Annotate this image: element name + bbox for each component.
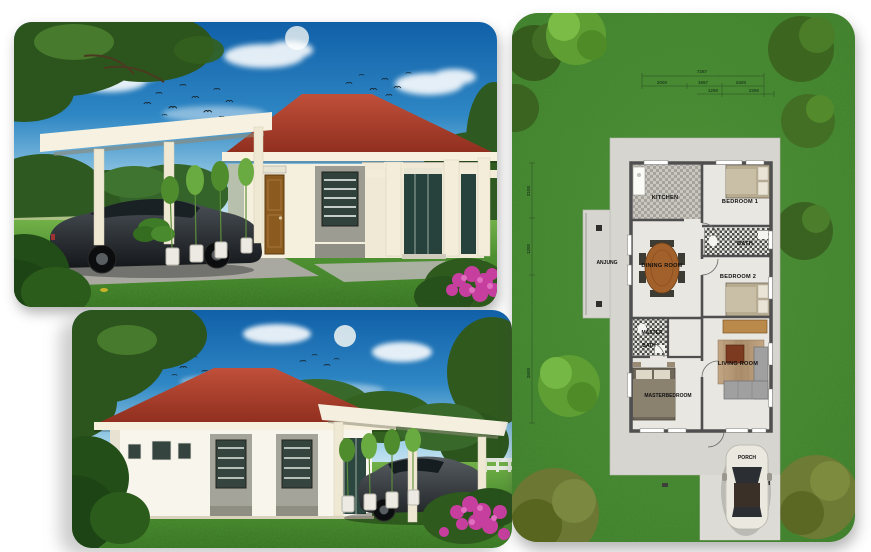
bath-sink xyxy=(655,345,665,353)
bed-bedroom2 xyxy=(726,283,770,316)
label-bedroom2: BEDROOM 2 xyxy=(720,274,756,280)
porch-step xyxy=(402,254,446,259)
small-window xyxy=(152,441,171,460)
anjung-post xyxy=(596,225,602,231)
exterior-render-rear-scene xyxy=(72,310,512,548)
side-mirror xyxy=(722,473,727,481)
label-anjung: ANJUNG xyxy=(596,260,617,266)
dim-segment: 2350 xyxy=(749,88,760,93)
bath-sink xyxy=(758,231,768,239)
label-kitchen: KITCHEN xyxy=(652,195,679,201)
label-porch: PORCH xyxy=(738,455,756,461)
wheel-hub xyxy=(96,253,108,265)
label-living: LIVING ROOM xyxy=(718,361,758,367)
label-bedroom1: BEDROOM 1 xyxy=(722,199,758,205)
tail-light xyxy=(51,234,55,240)
dim-segment: 2000 xyxy=(657,80,668,85)
carport-post xyxy=(94,149,104,245)
sideboard xyxy=(723,320,767,333)
side-mirror xyxy=(767,473,772,481)
door-transom-window xyxy=(263,166,286,173)
sink-basin xyxy=(637,173,641,177)
cabin xyxy=(734,483,760,507)
dim-left: 2100 xyxy=(526,185,531,196)
exterior-render-rear-image xyxy=(72,310,512,548)
sofa-seat xyxy=(724,381,768,399)
master-bed xyxy=(633,362,675,420)
floor-plan-scene: 7267 2000 1667 2400 1250 2350 2100 1200 … xyxy=(512,13,855,542)
porch-column xyxy=(444,160,459,256)
gray-base-band xyxy=(315,244,365,258)
small-window xyxy=(128,444,141,459)
porch-transom xyxy=(404,168,442,175)
gate-post xyxy=(662,483,668,487)
small-window xyxy=(178,443,191,459)
dim-total: 7267 xyxy=(697,69,708,74)
door-knob xyxy=(279,216,282,219)
label-dining: DINING ROOM xyxy=(641,263,682,269)
dim-segment: 1250 xyxy=(708,88,719,93)
dim-segment: 2400 xyxy=(736,80,747,85)
anjung-post xyxy=(596,301,602,307)
toilet xyxy=(709,236,718,247)
rear-window xyxy=(732,507,762,517)
label-master-bedroom: MASTERBEDROOM xyxy=(644,393,691,399)
carport-post xyxy=(254,127,263,243)
dim-segment: 1667 xyxy=(698,80,709,85)
dim-left: 2600 xyxy=(526,367,531,378)
moon xyxy=(334,325,356,347)
presentation-board: 7267 2000 1667 2400 1250 2350 2100 1200 … xyxy=(0,0,871,552)
kitchen-sink-counter xyxy=(633,167,645,195)
louver-window xyxy=(216,440,246,488)
glass-panel xyxy=(461,174,476,254)
label-master-bath-1: MASTER xyxy=(641,330,663,336)
bed-bedroom1 xyxy=(726,165,770,198)
exterior-render-front-scene xyxy=(14,22,497,307)
windshield xyxy=(732,467,762,483)
living-furniture xyxy=(718,340,768,399)
label-bath: BATH xyxy=(737,241,753,247)
exterior-render-front-image xyxy=(14,22,497,307)
porch-column xyxy=(386,162,401,256)
dim-left: 1200 xyxy=(526,243,531,254)
porch-column xyxy=(478,158,490,256)
glass-door xyxy=(404,174,442,254)
label-master-bath-2: BATH xyxy=(642,343,656,349)
floor-plan-image: 7267 2000 1667 2400 1250 2350 2100 1200 … xyxy=(512,13,855,542)
louver-window xyxy=(282,440,312,488)
